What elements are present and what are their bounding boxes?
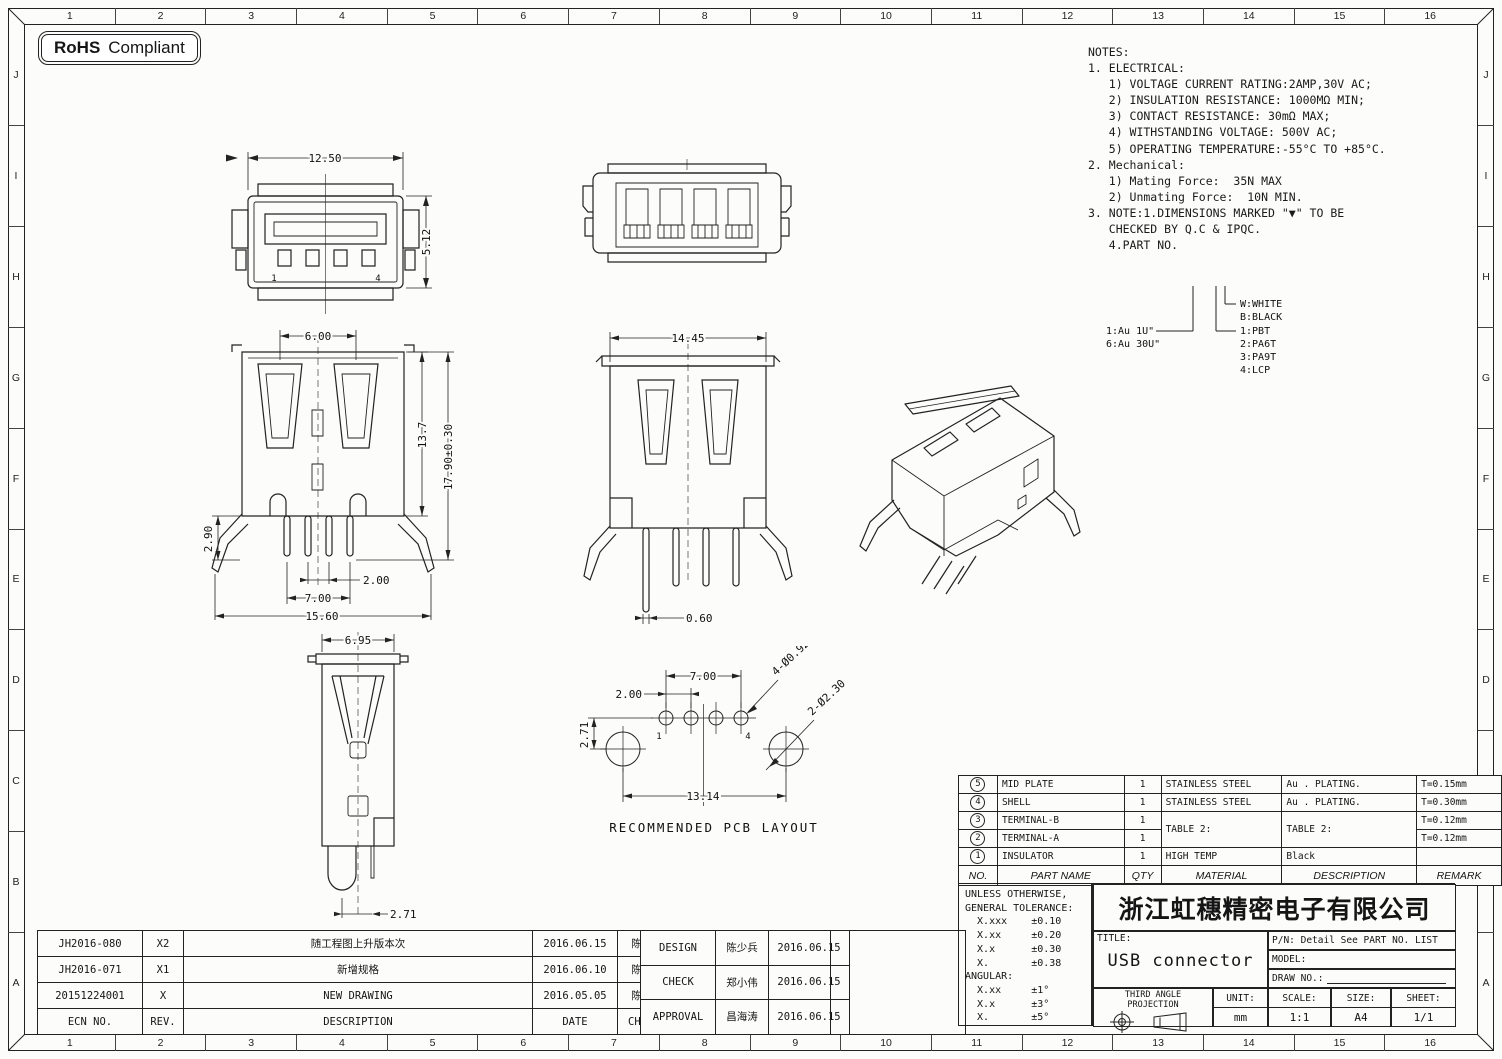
rohs-compliant: Compliant bbox=[108, 38, 185, 57]
ruler-label: 9 bbox=[751, 8, 842, 24]
part-remark: T=0.15mm bbox=[1417, 776, 1502, 794]
dim-2-71-pcb: 2.71 bbox=[578, 722, 591, 749]
part-number-circle: 2 bbox=[970, 831, 985, 846]
part-description: Au . PLATING. bbox=[1282, 776, 1417, 794]
revision-table: JH2016-080 X2 随工程图上升版本次 2016.06.15 陈少兵 J… bbox=[37, 930, 677, 1035]
dim-14-45: 14.45 bbox=[671, 332, 704, 345]
legend-black: B:BLACK bbox=[1240, 312, 1282, 323]
ruler-columns-bottom: 12345678910111213141516 bbox=[25, 1035, 1475, 1051]
part-number-circle: 3 bbox=[970, 813, 985, 828]
pcb-layout-drawing: 7.00 2.00 4-Ø0.92 2-Ø2.30 2.71 13.14 1 4… bbox=[566, 646, 861, 841]
ruler-label: 8 bbox=[660, 8, 751, 24]
dim-13-7: 13.7 bbox=[416, 422, 429, 449]
front-elevation-drawing: 14.45 0.60 bbox=[558, 322, 818, 637]
title-label: TITLE: bbox=[1094, 932, 1267, 945]
rev-date: 2016.06.15 bbox=[533, 931, 618, 957]
note-line: 2. Mechanical: bbox=[1088, 157, 1386, 173]
unit-label: UNIT: bbox=[1214, 989, 1267, 1008]
table-row: 4 SHELL 1 STAINLESS STEEL Au . PLATING. … bbox=[959, 794, 1502, 812]
ecn-no: JH2016-080 bbox=[38, 931, 143, 957]
legend-m3: 3:PA9T bbox=[1240, 352, 1276, 363]
ruler-label: 15 bbox=[1295, 8, 1386, 24]
pin4-label: 4 bbox=[375, 274, 380, 284]
size-label: SIZE: bbox=[1332, 989, 1390, 1008]
corner-mark bbox=[1477, 1034, 1494, 1051]
rear-view-drawing bbox=[580, 156, 795, 268]
ecn-no: 20151224001 bbox=[38, 983, 143, 1009]
side-elevation-drawing: 6.00 2.90 13.7 17.90±0.30 2.00 7.00 15.6… bbox=[182, 318, 482, 633]
ruler-label: 4 bbox=[297, 1035, 388, 1051]
draw-no-blank-line bbox=[1327, 973, 1446, 983]
dim-2-71-profile: 2.71 bbox=[390, 908, 417, 921]
rev-description: 新增规格 bbox=[184, 957, 533, 983]
isometric-view-drawing bbox=[848, 360, 1093, 595]
note-line: 3) CONTACT RESISTANCE: 30mΩ MAX; bbox=[1088, 108, 1386, 124]
part-name: SHELL bbox=[997, 794, 1124, 812]
table-row: JH2016-080 X2 随工程图上升版本次 2016.06.15 陈少兵 bbox=[38, 931, 677, 957]
ruler-label: H bbox=[1478, 227, 1494, 328]
ruler-label: 12 bbox=[1023, 1035, 1114, 1051]
approval-role: APPROVAL bbox=[641, 1000, 716, 1035]
part-qty: 1 bbox=[1124, 812, 1161, 830]
ruler-label: 13 bbox=[1113, 8, 1204, 24]
dim-12-50: 12.50 bbox=[308, 152, 341, 165]
ruler-label: H bbox=[8, 227, 24, 328]
ruler-label: 10 bbox=[841, 8, 932, 24]
part-name: TERMINAL-B bbox=[997, 812, 1124, 830]
table-row: JH2016-071 X1 新增规格 2016.06.10 陈少兵 bbox=[38, 957, 677, 983]
tolerance-line: X. ±0.38 bbox=[965, 957, 1091, 971]
rev-description: NEW DRAWING bbox=[184, 983, 533, 1009]
part-remark: T=0.12mm bbox=[1417, 812, 1502, 830]
note-line: 4) WITHSTANDING VOLTAGE: 500V AC; bbox=[1088, 124, 1386, 140]
col-header: DATE bbox=[533, 1009, 618, 1035]
ruler-label: I bbox=[1478, 126, 1494, 227]
tolerance-block: UNLESS OTHERWISE,GENERAL TOLERANCE: X.xx… bbox=[958, 883, 1092, 1026]
rev-description: 随工程图上升版本次 bbox=[184, 931, 533, 957]
rev: X2 bbox=[143, 931, 184, 957]
pcb-pin4-label: 4 bbox=[745, 732, 750, 742]
dim-holes-small: 4-Ø0.92 bbox=[769, 646, 812, 678]
legend-au2: 6:Au 30U" bbox=[1106, 339, 1160, 350]
tolerance-line: X.x ±3° bbox=[965, 998, 1091, 1012]
tolerance-line: X.x ±0.30 bbox=[965, 943, 1091, 957]
tolerance-line: GENERAL TOLERANCE: bbox=[965, 902, 1091, 916]
corner-mark bbox=[8, 8, 25, 25]
note-line: 1) Mating Force: 35N MAX bbox=[1088, 173, 1386, 189]
ruler-label: 11 bbox=[932, 8, 1023, 24]
part-qty: 1 bbox=[1124, 830, 1161, 848]
dim-0-60: 0.60 bbox=[686, 612, 713, 625]
drawing-title: USB connector bbox=[1094, 951, 1267, 971]
legend-white: W:WHITE bbox=[1240, 299, 1282, 310]
table-row: 3 TERMINAL-B 1 TABLE 2: TABLE 2: T=0.12m… bbox=[959, 812, 1502, 830]
side-profile-drawing: 6.95 2.71 bbox=[270, 626, 445, 926]
part-material: TABLE 2: bbox=[1161, 812, 1282, 848]
part-number-circle: 4 bbox=[970, 795, 985, 810]
ruler-label: B bbox=[8, 832, 24, 933]
ruler-label: 14 bbox=[1204, 8, 1295, 24]
rev-date: 2016.05.05 bbox=[533, 983, 618, 1009]
rohs-badge: RoHSCompliant bbox=[38, 31, 201, 65]
sheet-value: 1/1 bbox=[1392, 1008, 1455, 1026]
ruler-label: E bbox=[8, 530, 24, 631]
ruler-label: F bbox=[1478, 429, 1494, 530]
ruler-label: 7 bbox=[569, 1035, 660, 1051]
part-number-circle: 5 bbox=[970, 777, 985, 792]
ruler-label: 5 bbox=[388, 1035, 479, 1051]
rohs-bold: RoHS bbox=[54, 38, 100, 57]
company-name: 浙江虹穗精密电子有限公司 bbox=[1093, 884, 1456, 931]
ecn-no: JH2016-071 bbox=[38, 957, 143, 983]
tolerance-line: UNLESS OTHERWISE, bbox=[965, 888, 1091, 902]
part-remark-slash bbox=[1417, 848, 1502, 866]
part-name: TERMINAL-A bbox=[997, 830, 1124, 848]
tolerance-line: ANGULAR: bbox=[965, 970, 1091, 984]
note-line: 5) OPERATING TEMPERATURE:-55°C TO +85°C. bbox=[1088, 141, 1386, 157]
dim-15-60: 15.60 bbox=[305, 610, 338, 623]
dim-2-00: 2.00 bbox=[363, 574, 390, 587]
ruler-label: 6 bbox=[478, 8, 569, 24]
third-angle-projection-symbol bbox=[1094, 1011, 1212, 1033]
ruler-label: 2 bbox=[116, 8, 207, 24]
pin1-label: 1 bbox=[271, 274, 276, 284]
ruler-label: G bbox=[1478, 328, 1494, 429]
ruler-label: 3 bbox=[206, 8, 297, 24]
note-line: 2) Unmating Force: 10N MIN. bbox=[1088, 189, 1386, 205]
draw-no-label: DRAW NO.: bbox=[1272, 973, 1323, 984]
ruler-label: F bbox=[8, 429, 24, 530]
dim-13-14: 13.14 bbox=[686, 790, 719, 803]
table-row: CHECK 郑小伟 2016.06.15 bbox=[641, 965, 850, 1000]
ruler-label: 15 bbox=[1295, 1035, 1386, 1051]
note-line: NOTES: bbox=[1088, 44, 1386, 60]
ruler-columns-top: 12345678910111213141516 bbox=[25, 8, 1475, 24]
part-qty: 1 bbox=[1124, 776, 1161, 794]
ruler-label: C bbox=[8, 731, 24, 832]
ruler-label: I bbox=[8, 126, 24, 227]
size-value: A4 bbox=[1332, 1008, 1390, 1026]
part-material: STAINLESS STEEL bbox=[1161, 776, 1282, 794]
dim-6-95: 6.95 bbox=[345, 634, 372, 647]
col-header: REV. bbox=[143, 1009, 184, 1035]
part-description: Black bbox=[1282, 848, 1417, 866]
table-row: 1 INSULATOR 1 HIGH TEMP Black bbox=[959, 848, 1502, 866]
legend-m2: 2:PA6T bbox=[1240, 339, 1276, 350]
tolerance-line: X.xx ±1° bbox=[965, 984, 1091, 998]
dim-7-00-pcb: 7.00 bbox=[690, 670, 717, 683]
part-name: MID PLATE bbox=[997, 776, 1124, 794]
part-description: Au . PLATING. bbox=[1282, 794, 1417, 812]
ruler-label: 3 bbox=[206, 1035, 297, 1051]
ruler-label: 2 bbox=[116, 1035, 207, 1051]
ruler-label: 1 bbox=[25, 8, 116, 24]
ruler-label: D bbox=[8, 630, 24, 731]
legend-m1: 1:PBT bbox=[1240, 326, 1270, 337]
part-number-row: P/N: Detail See PART NO. LIST bbox=[1268, 931, 1456, 950]
ruler-label: A bbox=[8, 933, 24, 1033]
part-number-legend: 1:Au 1U" 6:Au 30U" W:WHITE B:BLACK 1:PBT… bbox=[1098, 282, 1408, 407]
scale-value: 1:1 bbox=[1269, 1008, 1330, 1026]
ruler-label: 14 bbox=[1204, 1035, 1295, 1051]
part-number-circle: 1 bbox=[970, 849, 985, 864]
ruler-label: 13 bbox=[1113, 1035, 1204, 1051]
col-header: DESCRIPTION bbox=[184, 1009, 533, 1035]
approval-empty-cell bbox=[830, 930, 966, 1035]
table-row: APPROVAL 昌海涛 2016.06.15 bbox=[641, 1000, 850, 1035]
corner-mark bbox=[1477, 8, 1494, 25]
table-row: DESIGN 陈少兵 2016.06.15 bbox=[641, 931, 850, 966]
ruler-label: J bbox=[8, 25, 24, 126]
part-remark: T=0.30mm bbox=[1417, 794, 1502, 812]
ruler-label: 4 bbox=[297, 8, 388, 24]
legend-m4: 4:LCP bbox=[1240, 365, 1270, 376]
part-material: HIGH TEMP bbox=[1161, 848, 1282, 866]
approval-name: 郑小伟 bbox=[716, 965, 769, 1000]
note-line: 4.PART NO. bbox=[1088, 237, 1386, 253]
rev: X1 bbox=[143, 957, 184, 983]
ruler-label: 1 bbox=[25, 1035, 116, 1051]
parts-table: 5 MID PLATE 1 STAINLESS STEEL Au . PLATI… bbox=[958, 775, 1502, 886]
corner-mark bbox=[8, 1034, 25, 1051]
ruler-label: J bbox=[1478, 25, 1494, 126]
dim-7-00: 7.00 bbox=[305, 592, 332, 605]
tolerance-line: X. ±5° bbox=[965, 1011, 1091, 1025]
ruler-label: 6 bbox=[478, 1035, 569, 1051]
sheet-label: SHEET: bbox=[1392, 989, 1455, 1008]
approval-name: 昌海涛 bbox=[716, 1000, 769, 1035]
approval-role: DESIGN bbox=[641, 931, 716, 966]
model-row: MODEL: bbox=[1268, 950, 1456, 969]
table-row: 20151224001 X NEW DRAWING 2016.05.05 陈少兵 bbox=[38, 983, 677, 1009]
ruler-label: 5 bbox=[388, 8, 479, 24]
ruler-label: 8 bbox=[660, 1035, 751, 1051]
pcb-pin1-label: 1 bbox=[656, 732, 661, 742]
ruler-label: 16 bbox=[1385, 1035, 1475, 1051]
part-name: INSULATOR bbox=[997, 848, 1124, 866]
part-remark: T=0.12mm bbox=[1417, 830, 1502, 848]
part-description: TABLE 2: bbox=[1282, 812, 1417, 848]
note-line: 1) VOLTAGE CURRENT RATING:2AMP,30V AC; bbox=[1088, 76, 1386, 92]
col-header: ECN NO. bbox=[38, 1009, 143, 1035]
ruler-label: E bbox=[1478, 530, 1494, 631]
note-line: 3. NOTE:1.DIMENSIONS MARKED "▼" TO BE bbox=[1088, 205, 1386, 221]
note-line: 1. ELECTRICAL: bbox=[1088, 60, 1386, 76]
ruler-label: A bbox=[1478, 933, 1494, 1033]
ruler-label: 7 bbox=[569, 8, 660, 24]
dim-6-00: 6.00 bbox=[305, 330, 332, 343]
table-row: 5 MID PLATE 1 STAINLESS STEEL Au . PLATI… bbox=[959, 776, 1502, 794]
ruler-label: 11 bbox=[932, 1035, 1023, 1051]
unit-value: mm bbox=[1214, 1008, 1267, 1026]
ruler-label: 9 bbox=[751, 1035, 842, 1051]
drawing-sheet: 12345678910111213141516 1234567891011121… bbox=[0, 0, 1502, 1059]
tolerance-line: X.xxx ±0.10 bbox=[965, 915, 1091, 929]
approval-name: 陈少兵 bbox=[716, 931, 769, 966]
approval-block: DESIGN 陈少兵 2016.06.15 CHECK 郑小伟 2016.06.… bbox=[640, 930, 850, 1035]
dim-2-00-pcb: 2.00 bbox=[616, 688, 643, 701]
dim-5-12: 5.12 bbox=[420, 229, 433, 256]
dim-holes-big: 2-Ø2.30 bbox=[805, 677, 848, 718]
dim-17-90: 17.90±0.30 bbox=[442, 424, 455, 490]
dim-2-90: 2.90 bbox=[202, 526, 215, 553]
rev: X bbox=[143, 983, 184, 1009]
legend-au1: 1:Au 1U" bbox=[1106, 326, 1154, 337]
part-qty: 1 bbox=[1124, 794, 1161, 812]
notes-block: NOTES:1. ELECTRICAL: 1) VOLTAGE CURRENT … bbox=[1088, 44, 1386, 253]
ruler-label: 16 bbox=[1385, 8, 1475, 24]
scale-label: SCALE: bbox=[1269, 989, 1330, 1008]
title-block: 浙江虹穗精密电子有限公司 TITLE: USB connector P/N: D… bbox=[1092, 883, 1455, 1026]
tolerance-line: X.xx ±0.20 bbox=[965, 929, 1091, 943]
ruler-label: D bbox=[1478, 630, 1494, 731]
approval-role: CHECK bbox=[641, 965, 716, 1000]
table-header-row: ECN NO. REV. DESCRIPTION DATE CHANGE bbox=[38, 1009, 677, 1035]
part-material: STAINLESS STEEL bbox=[1161, 794, 1282, 812]
ruler-rows-left: JIHGFEDCBA bbox=[8, 25, 24, 1033]
note-line: CHECKED BY Q.C & IPQC. bbox=[1088, 221, 1386, 237]
projection-label: THIRD ANGLE PROJECTION bbox=[1094, 989, 1212, 1011]
pcb-layout-caption: RECOMMENDED PCB LAYOUT bbox=[609, 820, 819, 835]
ruler-label: 10 bbox=[841, 1035, 932, 1051]
ruler-label: G bbox=[8, 328, 24, 429]
rev-date: 2016.06.10 bbox=[533, 957, 618, 983]
part-qty: 1 bbox=[1124, 848, 1161, 866]
note-line: 2) INSULATION RESISTANCE: 1000MΩ MIN; bbox=[1088, 92, 1386, 108]
ruler-label: 12 bbox=[1023, 8, 1114, 24]
